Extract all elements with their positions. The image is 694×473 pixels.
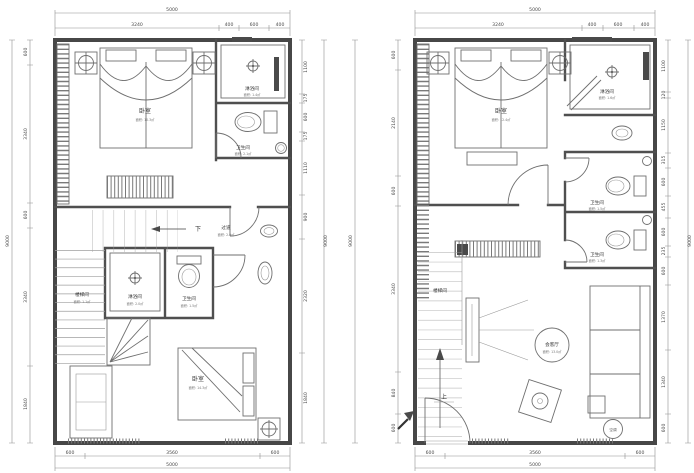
shower-room-fixtures xyxy=(567,45,650,110)
room-label-wc: 卫生间 xyxy=(236,144,250,151)
dim-label: 3340 xyxy=(391,283,397,295)
room-area-shower-mid: 面积: 2.0㎡ xyxy=(127,301,145,306)
dim-label: 9000 xyxy=(323,235,329,247)
dim-label: 600 xyxy=(66,450,75,456)
direction-down-label: 下 xyxy=(195,226,201,233)
dim-label: 600 xyxy=(303,113,309,122)
door-arc xyxy=(565,240,587,262)
dim-label: 9000 xyxy=(348,235,354,247)
room-area-shower: 面积: 1.6㎡ xyxy=(599,95,617,100)
dim-label: 5000 xyxy=(166,7,178,13)
dim-label: 1840 xyxy=(23,398,29,410)
dim-label: 1100 xyxy=(303,61,309,73)
dim-label: 3560 xyxy=(529,450,541,456)
stair-flight xyxy=(107,176,173,198)
basin-icon xyxy=(612,126,632,140)
dim-label: 1340 xyxy=(661,376,667,388)
floor-plan-canvas: 5000 3240 400 600 400 600 3560 600 5000 … xyxy=(0,0,694,473)
dim-label: 600 xyxy=(636,450,645,456)
table-top xyxy=(532,393,548,409)
dim-label: 175 xyxy=(303,94,309,103)
room-label-bedroom: 卧室 xyxy=(495,107,507,115)
room-area-corridor: 面积: 2.0㎡ xyxy=(218,232,236,237)
wall-niche xyxy=(232,37,252,42)
room-label-shower-mid: 淋浴间 xyxy=(128,293,142,300)
door-arc xyxy=(508,165,548,205)
shower-door xyxy=(567,76,601,110)
dim-label: 1150 xyxy=(661,119,667,131)
dim-label: 455 xyxy=(661,203,667,212)
basin-icon xyxy=(258,262,272,284)
entry-arrow xyxy=(398,419,408,429)
lamp-icon xyxy=(193,52,215,74)
dim-label: 9000 xyxy=(5,235,11,247)
room-area-wc: 面积: 2.1㎡ xyxy=(235,151,253,156)
right-plan-labels: 卧室 面积: 12.4㎡ 淋浴间 面积: 1.6㎡ 卫生间 面积: 1.5㎡ 卫… xyxy=(433,88,617,432)
dim-label: 600 xyxy=(426,450,435,456)
dim-label: 1100 xyxy=(661,60,667,72)
dim-label: 315 xyxy=(661,156,667,165)
dim-label: 1840 xyxy=(303,392,309,404)
dim-label: 3340 xyxy=(23,291,29,303)
dim-label: 235 xyxy=(661,247,667,256)
table xyxy=(519,380,562,423)
dim-label: 120 xyxy=(661,91,667,100)
dim-label: 600 xyxy=(661,267,667,276)
entry-door-arc xyxy=(425,398,470,443)
room-area-living: 面积: 13.0㎡ xyxy=(543,349,563,354)
right-plan-furniture xyxy=(398,44,652,443)
room-label-wc-1: 卫生间 xyxy=(590,199,604,206)
side-table xyxy=(588,396,605,413)
lamp-icon xyxy=(549,52,571,74)
up-arrow-head xyxy=(436,348,444,360)
room-area-wc-2: 面积: 1.3㎡ xyxy=(589,258,607,263)
right-plan: 5000 3240 400 600 400 600 3560 600 5000 … xyxy=(348,7,693,471)
room-area-stairwell: 面积: 1.1㎡ xyxy=(74,299,92,304)
room-label-stairwell: 楼梯间 xyxy=(433,287,447,294)
door-arc xyxy=(565,158,589,182)
room-label-wc-2: 卫生间 xyxy=(590,251,604,258)
winder-steps xyxy=(107,318,150,365)
toilet-icon xyxy=(606,216,652,251)
lamp-icon xyxy=(427,52,449,74)
stair-landing xyxy=(455,241,540,257)
dim-label: 400 xyxy=(225,22,234,28)
dim-label: 600 xyxy=(23,211,29,220)
basin-icon xyxy=(276,143,287,154)
toilet-icon xyxy=(235,111,277,133)
dim-label: 600 xyxy=(391,424,397,433)
right-plan-dimension-lines: 5000 3240 400 600 400 600 3560 600 5000 … xyxy=(348,7,693,471)
dim-label: 600 xyxy=(271,450,280,456)
blueprint-page: 5000 3240 400 600 400 600 3560 600 5000 … xyxy=(0,0,694,473)
wall-niche xyxy=(572,37,612,42)
basin-icon xyxy=(261,225,278,237)
dim-label: 840 xyxy=(391,389,397,398)
room-label-living: 会客厅 xyxy=(545,341,559,348)
dim-label: 3240 xyxy=(492,22,504,28)
dim-label: 400 xyxy=(588,22,597,28)
room-label-bedroom-2: 卧室 xyxy=(192,375,204,383)
lamp-icon xyxy=(75,52,97,74)
dim-label: 400 xyxy=(276,22,285,28)
dim-label: 5000 xyxy=(166,462,178,468)
room-area-bedroom: 面积: 12.4㎡ xyxy=(492,117,512,122)
dim-label: 2320 xyxy=(303,290,309,302)
dim-label: 5000 xyxy=(529,462,541,468)
down-arrow-head xyxy=(151,226,160,232)
dim-label: 9000 xyxy=(687,235,693,247)
room-area-wc-1: 面积: 1.5㎡ xyxy=(589,206,607,211)
dim-label: 3340 xyxy=(23,128,29,140)
toilet-icon xyxy=(177,256,201,288)
room-label-wc-mid: 卫生间 xyxy=(182,295,196,302)
dim-label: 600 xyxy=(391,187,397,196)
dim-label: 1110 xyxy=(303,162,309,174)
lamp-icon xyxy=(258,418,280,440)
room-area-bedroom-2: 面积: 14.3㎡ xyxy=(189,385,209,390)
room-label-shower: 淋浴间 xyxy=(245,85,259,92)
room-label-bedroom: 卧室 xyxy=(139,107,151,115)
dim-label: 600 xyxy=(661,178,667,187)
dim-label: 900 xyxy=(303,213,309,222)
dim-label: 600 xyxy=(250,22,259,28)
dim-label: 600 xyxy=(391,51,397,60)
dim-label: 400 xyxy=(641,22,650,28)
dim-label: 175 xyxy=(303,132,309,141)
room-label-corridor: 过道 xyxy=(221,224,231,231)
room-area-wc-mid: 面积: 1.5㎡ xyxy=(181,303,199,308)
door-arc xyxy=(213,255,245,287)
dim-label: 600 xyxy=(661,424,667,433)
dim-label: 5000 xyxy=(529,7,541,13)
ac-unit-label: 空调 xyxy=(609,427,617,432)
entry-arrow-head xyxy=(404,411,414,421)
dim-label: 3560 xyxy=(166,450,178,456)
dim-label: 3240 xyxy=(131,22,143,28)
dim-label: 600 xyxy=(661,228,667,237)
room-label-stairwell: 楼梯间 xyxy=(75,291,89,298)
sofa xyxy=(590,286,650,418)
room-area-shower: 面积: 1.4㎡ xyxy=(244,92,262,97)
toilet-icon xyxy=(606,157,652,197)
table-top-detail xyxy=(538,399,543,404)
left-plan: 5000 3240 400 600 400 600 3560 600 5000 … xyxy=(5,7,329,471)
double-bed xyxy=(455,48,547,165)
double-bed xyxy=(178,348,256,420)
dim-label: 1370 xyxy=(661,311,667,323)
room-label-shower: 淋浴间 xyxy=(600,88,614,95)
direction-up-label: 上 xyxy=(441,393,447,401)
room-area-bedroom: 面积: 10.3㎡ xyxy=(136,117,156,122)
dim-label: 2140 xyxy=(391,117,397,129)
sofa xyxy=(70,366,112,438)
door-arc xyxy=(230,207,259,236)
dim-label: 600 xyxy=(23,48,29,57)
dim-label: 600 xyxy=(614,22,623,28)
tv-panel xyxy=(466,298,534,362)
double-bed xyxy=(100,48,192,148)
